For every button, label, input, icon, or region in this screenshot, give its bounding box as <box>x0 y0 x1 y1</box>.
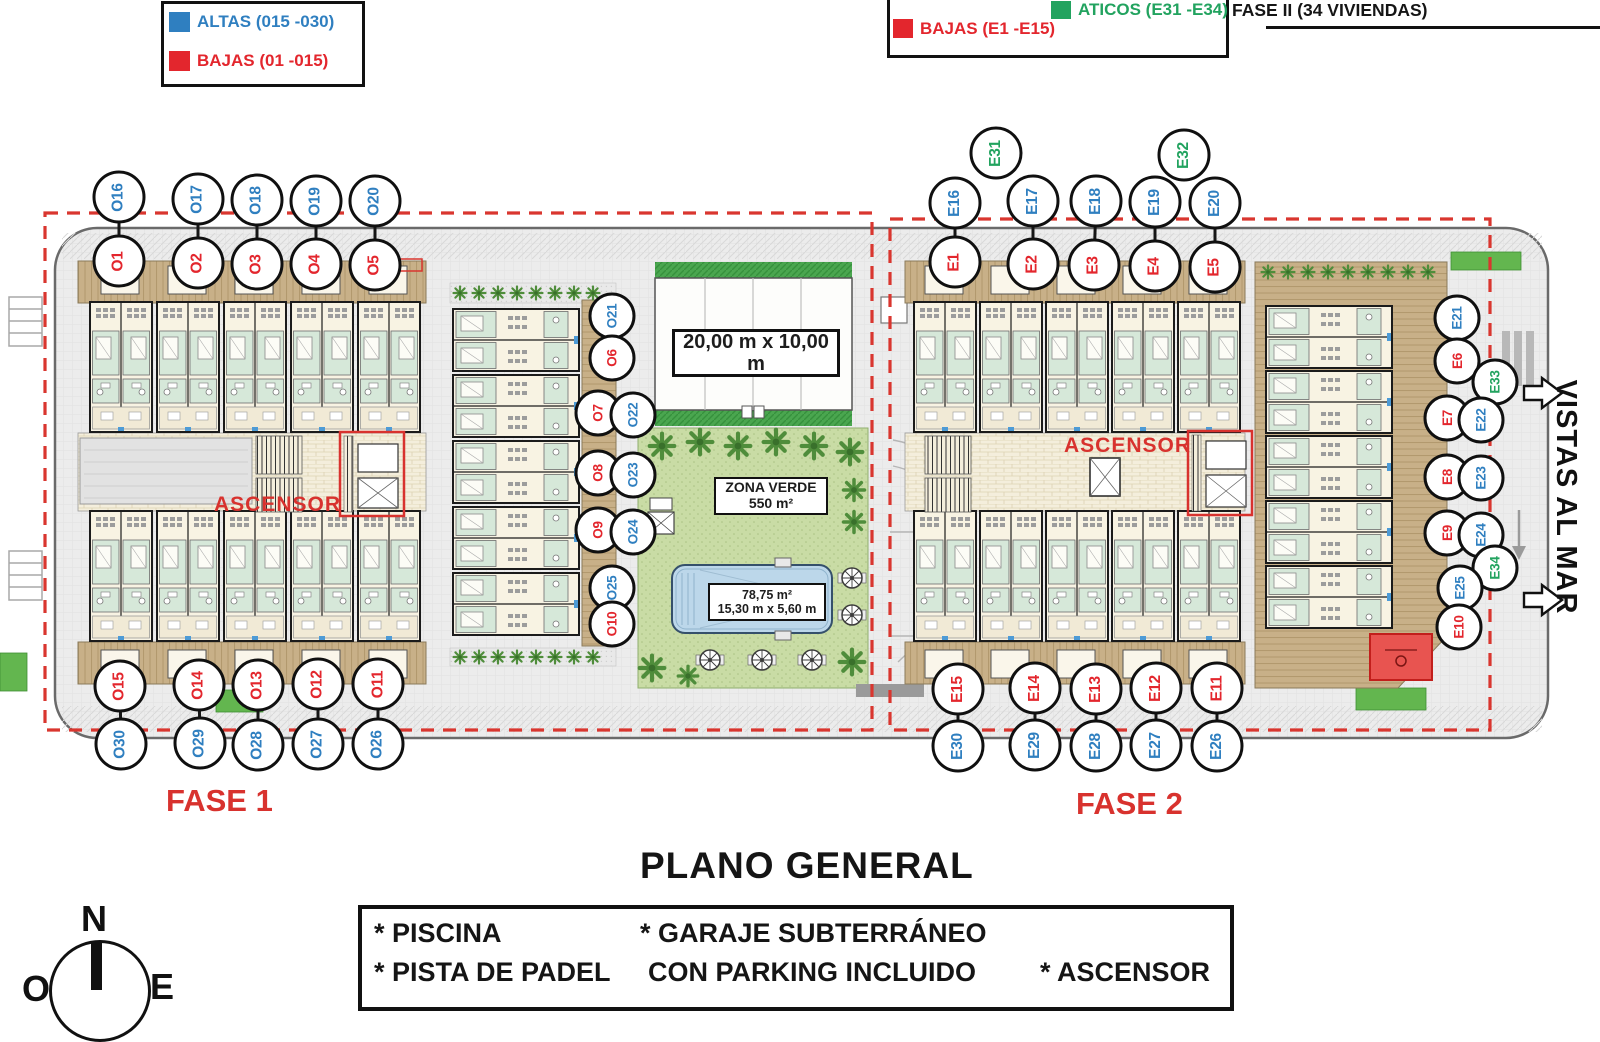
aticos-color-swatch <box>1051 1 1071 19</box>
bajas-color-swatch <box>169 51 190 71</box>
site-plan-page: { "legend_fase1": { "altas_label": "ALTA… <box>0 0 1600 1024</box>
vistas-al-mar-label: VISTAS AL MAR <box>1542 357 1582 637</box>
amenity-pista: * PISTA DE PADEL <box>374 957 611 988</box>
altas-color-swatch <box>169 12 190 32</box>
page-title: PLANO GENERAL <box>640 845 974 887</box>
legend-bajas2-label: BAJAS (E1 -E15) <box>920 19 1055 39</box>
amenity-piscina: * PISCINA <box>374 918 502 949</box>
amenity-garaje: * GARAJE SUBTERRÁNEO <box>640 918 987 949</box>
amenities-box: * PISCINA * PISTA DE PADEL * GARAJE SUBT… <box>358 905 1234 1011</box>
ascensor-label-fase1: ASCENSOR <box>214 493 341 517</box>
compass-west: O <box>22 968 50 1010</box>
compass-east: E <box>150 966 174 1008</box>
ascensor-label-fase2: ASCENSOR <box>1064 434 1191 458</box>
amenity-ascensor: * ASCENSOR <box>1040 957 1210 988</box>
legend-altas-label: ALTAS (015 -030) <box>197 12 334 32</box>
compass-needle-icon <box>91 943 102 990</box>
legend-aticos-label: ATICOS (E31 -E34) <box>1078 0 1228 20</box>
fase2-legend-title: FASE II (34 VIVIENDAS) <box>1232 0 1427 21</box>
title-divider-line <box>1266 26 1600 29</box>
bajas2-color-swatch <box>893 19 913 38</box>
fase2-title: FASE 2 <box>1076 786 1183 822</box>
compass-north: N <box>81 898 107 940</box>
legend-bajas-label: BAJAS (01 -015) <box>197 51 328 71</box>
fase1-title: FASE 1 <box>166 783 273 819</box>
amenity-parking: CON PARKING INCLUIDO <box>648 957 976 988</box>
